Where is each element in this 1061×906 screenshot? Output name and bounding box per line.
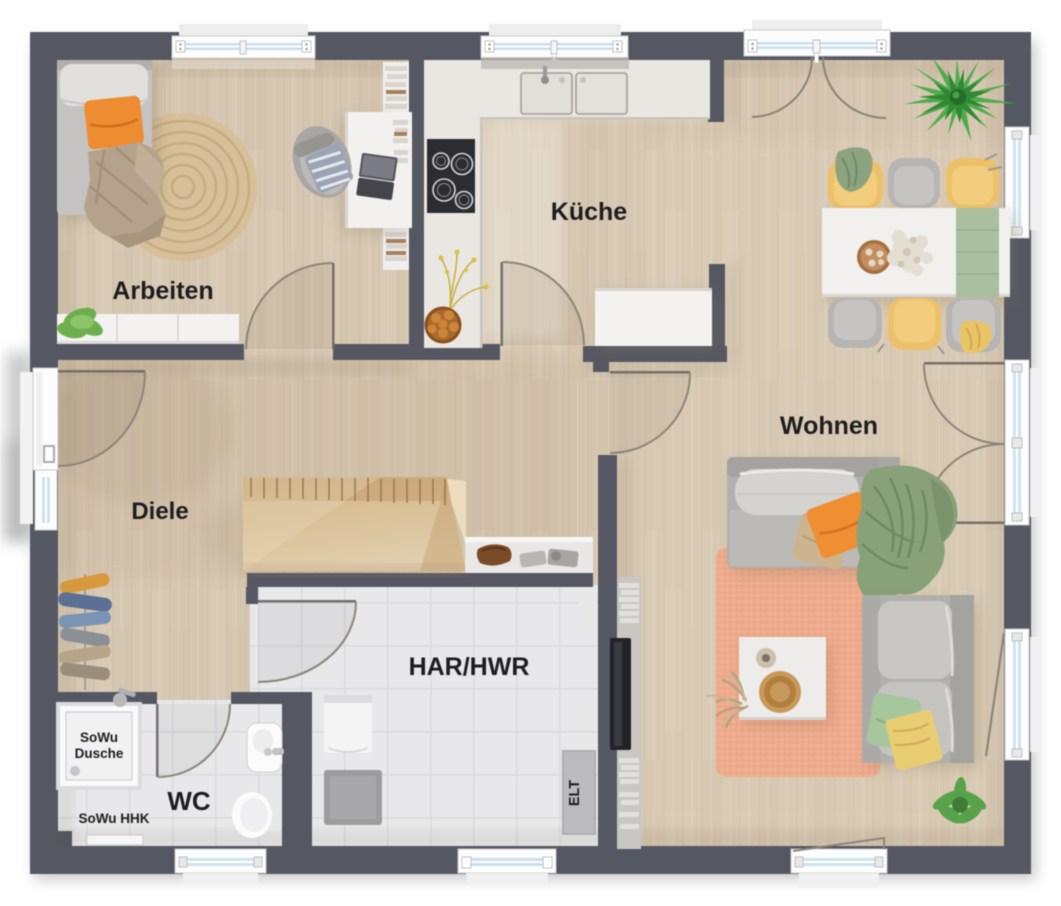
svg-text:WC: WC (167, 786, 211, 816)
svg-text:Küche: Küche (551, 198, 628, 226)
svg-text:SoWu: SoWu (80, 730, 118, 745)
svg-text:Wohnen: Wohnen (780, 412, 878, 440)
svg-text:Dusche: Dusche (75, 746, 124, 761)
svg-text:Arbeiten: Arbeiten (112, 277, 213, 305)
svg-text:Diele: Diele (131, 498, 188, 525)
svg-text:ELT: ELT (567, 780, 583, 806)
svg-text:HAR/HWR: HAR/HWR (409, 653, 530, 681)
svg-text:SoWu HHK: SoWu HHK (79, 811, 150, 826)
